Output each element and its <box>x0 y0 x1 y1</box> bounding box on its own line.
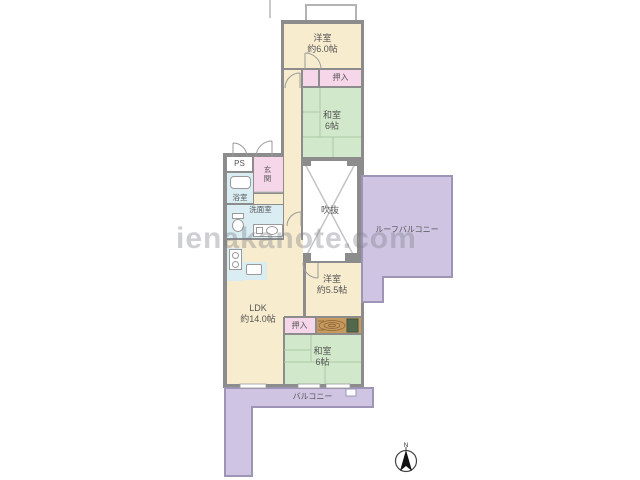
balcony-area <box>225 388 373 476</box>
alcove-board-icon <box>347 319 358 332</box>
plan-overlay <box>0 0 640 480</box>
wood-grain-icon <box>318 321 345 331</box>
roof-balcony-area <box>362 176 452 302</box>
tatami-lines-upper <box>303 88 361 157</box>
balcony-pillar <box>346 389 356 396</box>
floorplan-canvas: 洋室約6.0帖 押入 和室6帖 PS 玄関 浴室 洗面室 吹抜 ルーフバルコニー… <box>0 0 640 480</box>
tatami-lines-lower <box>284 335 361 384</box>
void-x-icon <box>304 162 356 260</box>
compass-icon <box>396 447 417 472</box>
